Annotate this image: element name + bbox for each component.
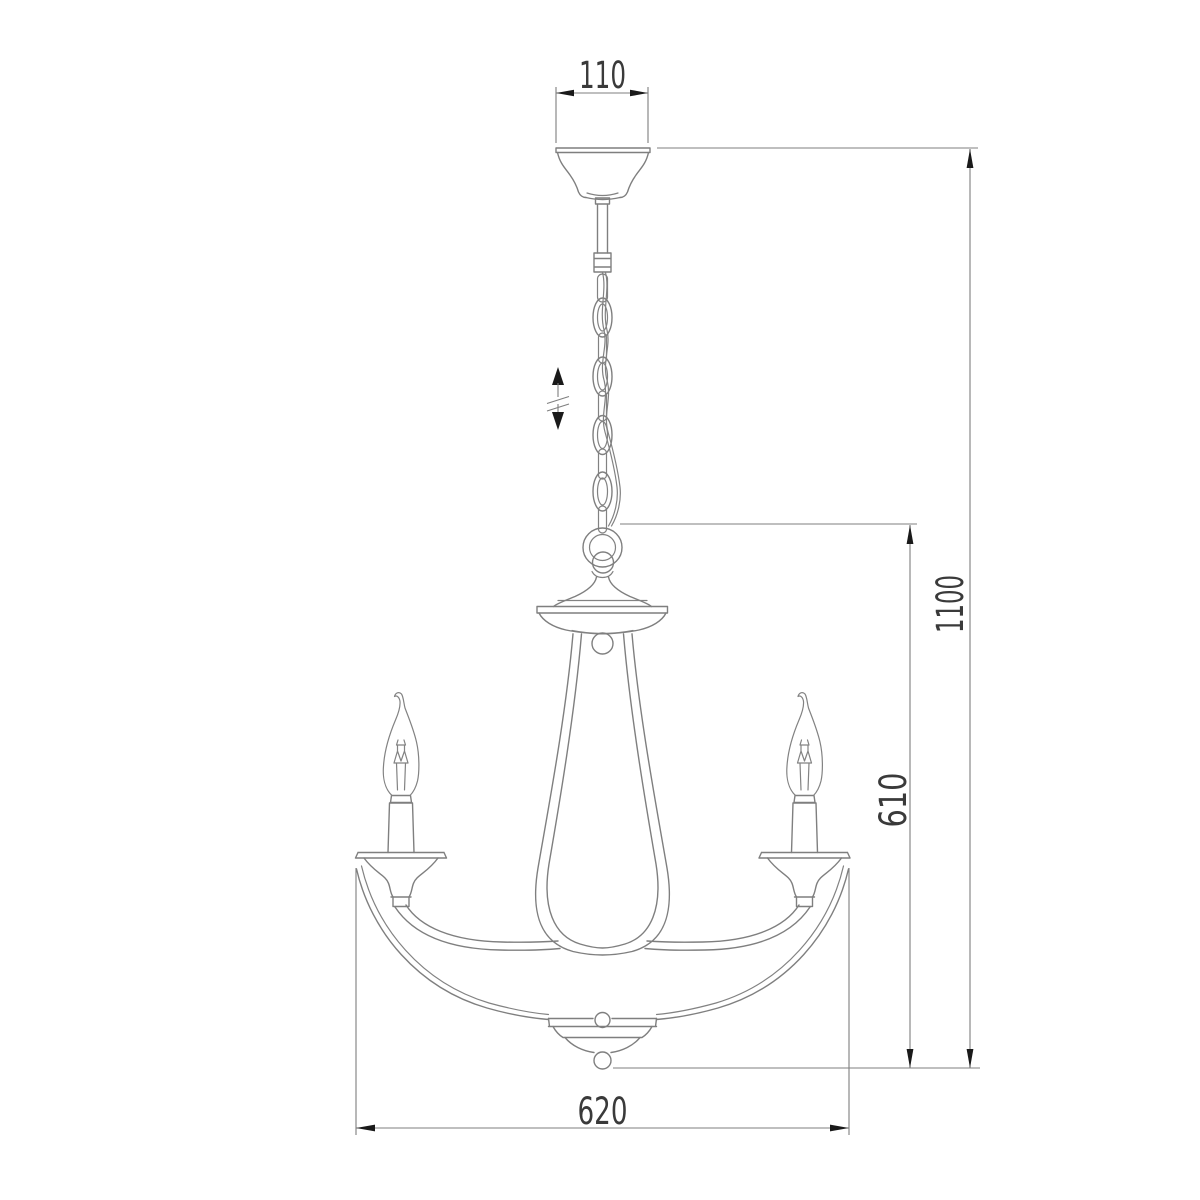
technical-drawing: 110 1100 610 620 (0, 0, 1200, 1200)
goblet-frame (536, 634, 670, 955)
left-arm (395, 905, 560, 950)
dim-body-height-label: 610 (872, 773, 915, 828)
dim-canopy-width-label: 110 (579, 54, 626, 97)
height-adjustable-arrow-icon (547, 367, 569, 430)
right-arm (645, 905, 810, 950)
drawing-canvas: 110 1100 610 620 (0, 0, 1200, 1200)
ceiling-canopy (556, 148, 650, 200)
dim-body-width-label: 620 (578, 1090, 628, 1133)
hanging-ring (583, 528, 622, 578)
canopy-stem (594, 198, 611, 272)
dim-body-height: 610 (620, 524, 917, 1068)
bottom-finial (549, 1013, 657, 1070)
dim-canopy-width: 110 (556, 54, 648, 143)
right-candle (759, 693, 850, 907)
dim-overall-height-label: 1100 (929, 575, 972, 633)
dim-body-width: 620 (356, 868, 849, 1135)
cap-ball (592, 633, 613, 654)
body-cap (537, 577, 668, 654)
left-candle (356, 693, 447, 907)
